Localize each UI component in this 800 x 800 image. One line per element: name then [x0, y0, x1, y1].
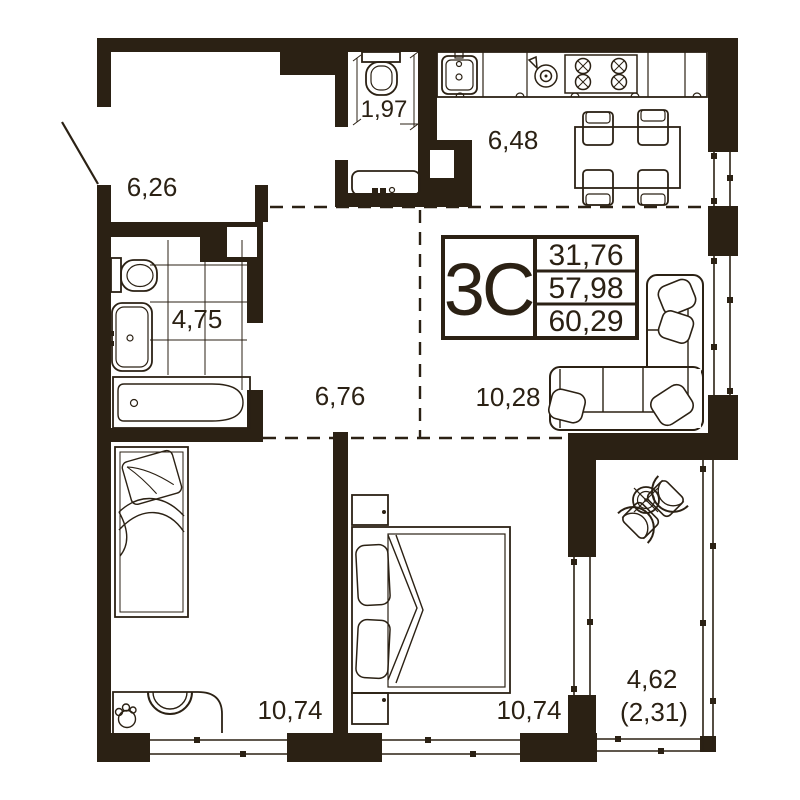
label-living: 10,28: [475, 382, 540, 412]
wc-room: [352, 52, 420, 195]
wall-bottom-b: [287, 733, 382, 762]
wall-top: [97, 38, 710, 52]
bedroom-right-furniture: [352, 495, 510, 724]
floorplan: 3C 31,76 57,98 60,29: [0, 0, 800, 800]
unit-area-2: 57,98: [548, 272, 623, 305]
window-right-upper: [708, 152, 738, 206]
single-bed-icon: [115, 447, 188, 617]
entrance-door-leaf: [62, 122, 98, 184]
bathroom-toilet-icon: [111, 258, 157, 292]
wall-wc-right: [418, 38, 437, 142]
window-bedroom-right: [382, 733, 520, 762]
toilet-icon: [362, 52, 400, 95]
wall-wc-left-a: [335, 38, 348, 127]
dining-table: [575, 127, 680, 188]
bedroom-left-furniture: [113, 447, 222, 733]
label-balcony: 4,62: [627, 664, 678, 694]
bathroom: [106, 240, 250, 428]
wall-balcony-part-b: [568, 695, 596, 735]
window-balcony-partition: [568, 557, 596, 695]
wall-right-low: [708, 395, 738, 460]
wall-hall-pier: [280, 52, 335, 75]
kitchen-sink-icon: [442, 52, 477, 94]
window-right-lower: [708, 256, 738, 395]
nightstand-icon: [352, 495, 388, 724]
label-bedroom-right: 10,74: [496, 695, 561, 725]
wall-bottom-c: [520, 733, 597, 762]
double-bed-icon: [352, 527, 510, 693]
desk-chair-icon: [148, 692, 192, 714]
wall-balcony-top: [568, 433, 710, 460]
kettle-icon: [529, 57, 557, 87]
unit-type-label: 3C: [444, 248, 533, 331]
wall-balcony-part-a: [568, 460, 596, 557]
unit-info-box: 3C 31,76 57,98 60,29: [443, 237, 637, 338]
wall-right-mid: [708, 206, 738, 256]
stove-icon: [565, 55, 637, 93]
duct-shaft-kitchen: [430, 150, 454, 178]
label-bedroom-left: 10,74: [257, 695, 322, 725]
unit-area-3: 60,29: [548, 305, 623, 338]
bathtub-icon: [113, 377, 250, 428]
label-hall: 6,26: [127, 172, 178, 202]
wall-left-stub: [97, 38, 111, 107]
kitchen-zone: [437, 52, 707, 205]
wall-bath-top: [111, 222, 203, 237]
wall-bottom-a: [97, 733, 150, 762]
dining-set: [575, 110, 680, 205]
wall-left-main: [97, 185, 111, 762]
wall-bath-bottom: [97, 428, 260, 442]
window-bedroom-left: [150, 733, 287, 762]
label-wc: 1,97: [361, 96, 408, 123]
plant-icon: [116, 704, 137, 728]
dining-chair: [583, 110, 668, 205]
wall-inter-bedroom: [333, 432, 348, 733]
wall-hall-stub: [255, 185, 268, 222]
wc-washbasin-icon: [352, 171, 420, 195]
wall-right-top: [708, 38, 738, 152]
label-corridor: 6,76: [315, 381, 366, 411]
balcony-furniture: [617, 475, 690, 545]
label-kitchen: 6,48: [488, 125, 539, 155]
label-balcony-coef: (2,31): [620, 697, 688, 727]
label-bathroom: 4,75: [172, 304, 223, 334]
bathroom-basin-icon: [106, 303, 152, 371]
unit-area-1: 31,76: [548, 239, 623, 272]
